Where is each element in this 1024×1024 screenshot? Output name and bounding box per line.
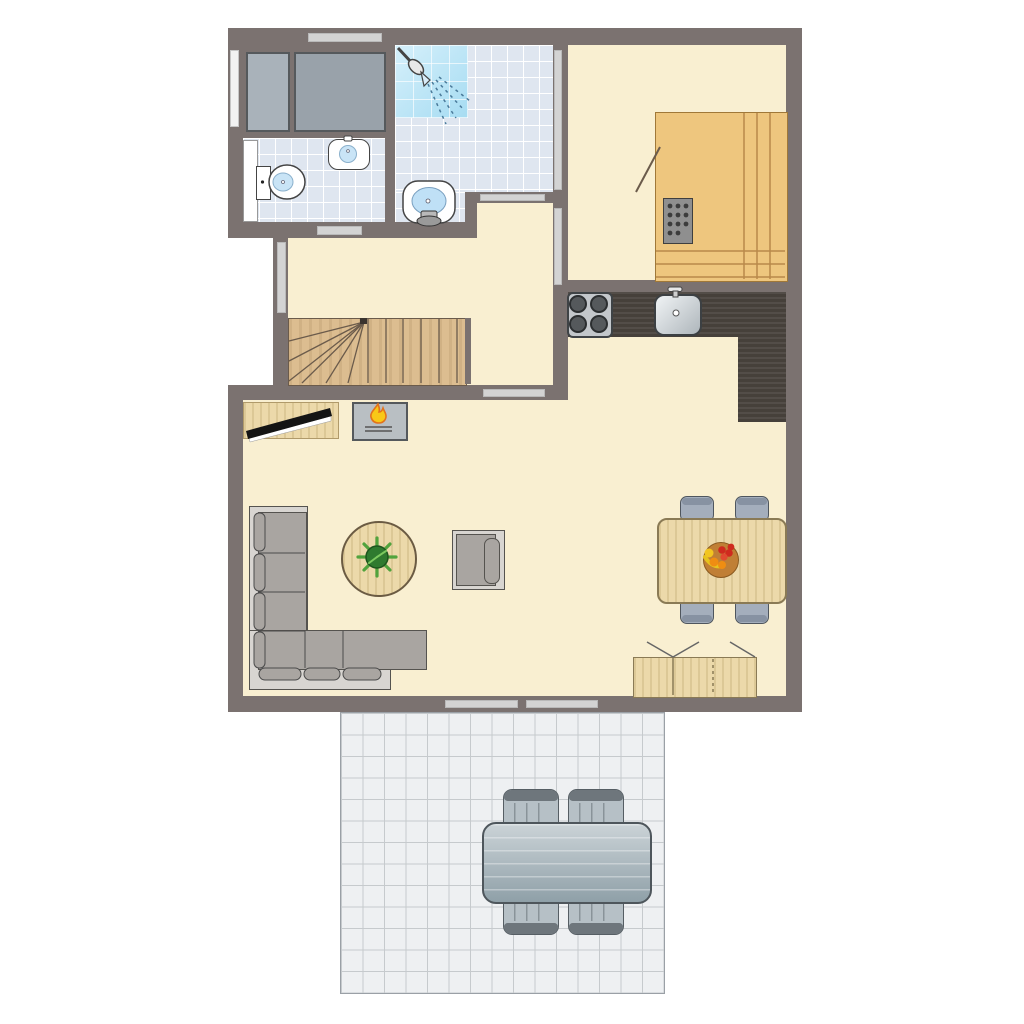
exterior-notch (228, 238, 273, 385)
stairs-side-wall (465, 318, 471, 384)
staircase (288, 318, 467, 386)
armchair-backrest (484, 538, 500, 584)
washbasin (328, 139, 370, 170)
toilet-cistern (256, 166, 271, 200)
kitchen-sink (654, 294, 702, 336)
chair-backrest (682, 615, 712, 622)
shower-tray (395, 45, 468, 118)
coffee-table (341, 521, 417, 597)
wardrobe-unit-2 (294, 52, 386, 132)
fireplace (352, 402, 408, 441)
bathroom-floor-annex (395, 192, 465, 222)
chair-backrest (737, 498, 767, 505)
kitchen-counter-side (738, 337, 786, 422)
sideboard (633, 657, 757, 698)
sauna-heater (663, 198, 693, 244)
stove (567, 292, 613, 338)
wardrobe-unit-1 (246, 52, 290, 132)
floor-plan-canvas (0, 0, 1024, 1024)
chair-backrest (569, 923, 623, 934)
tv-console (243, 402, 339, 439)
door-hall-sauna (554, 208, 562, 285)
chair-backrest (569, 790, 623, 801)
window-top-wall (308, 33, 382, 42)
window-hall-left (277, 242, 286, 313)
chair-backrest (682, 498, 712, 505)
chair-backrest (504, 923, 558, 934)
door-hall-bathroom (480, 194, 545, 201)
door-toilet-hall (317, 226, 362, 235)
chair-backrest (504, 790, 558, 801)
chair-backrest (737, 615, 767, 622)
glazing-bathroom-sauna (554, 50, 562, 190)
sliding-door-terrace-left (445, 700, 518, 708)
door-hall-living (483, 389, 545, 397)
fruit-bowl (703, 542, 739, 578)
terrace-table (482, 822, 652, 904)
sauna-bench (655, 112, 788, 282)
sliding-door-terrace-right (526, 700, 598, 708)
window-left-wall (230, 50, 239, 127)
sofa-seat-horizontal (258, 630, 427, 670)
sofa-seat-vertical (258, 512, 307, 639)
hallway-annex-floor (477, 203, 553, 238)
